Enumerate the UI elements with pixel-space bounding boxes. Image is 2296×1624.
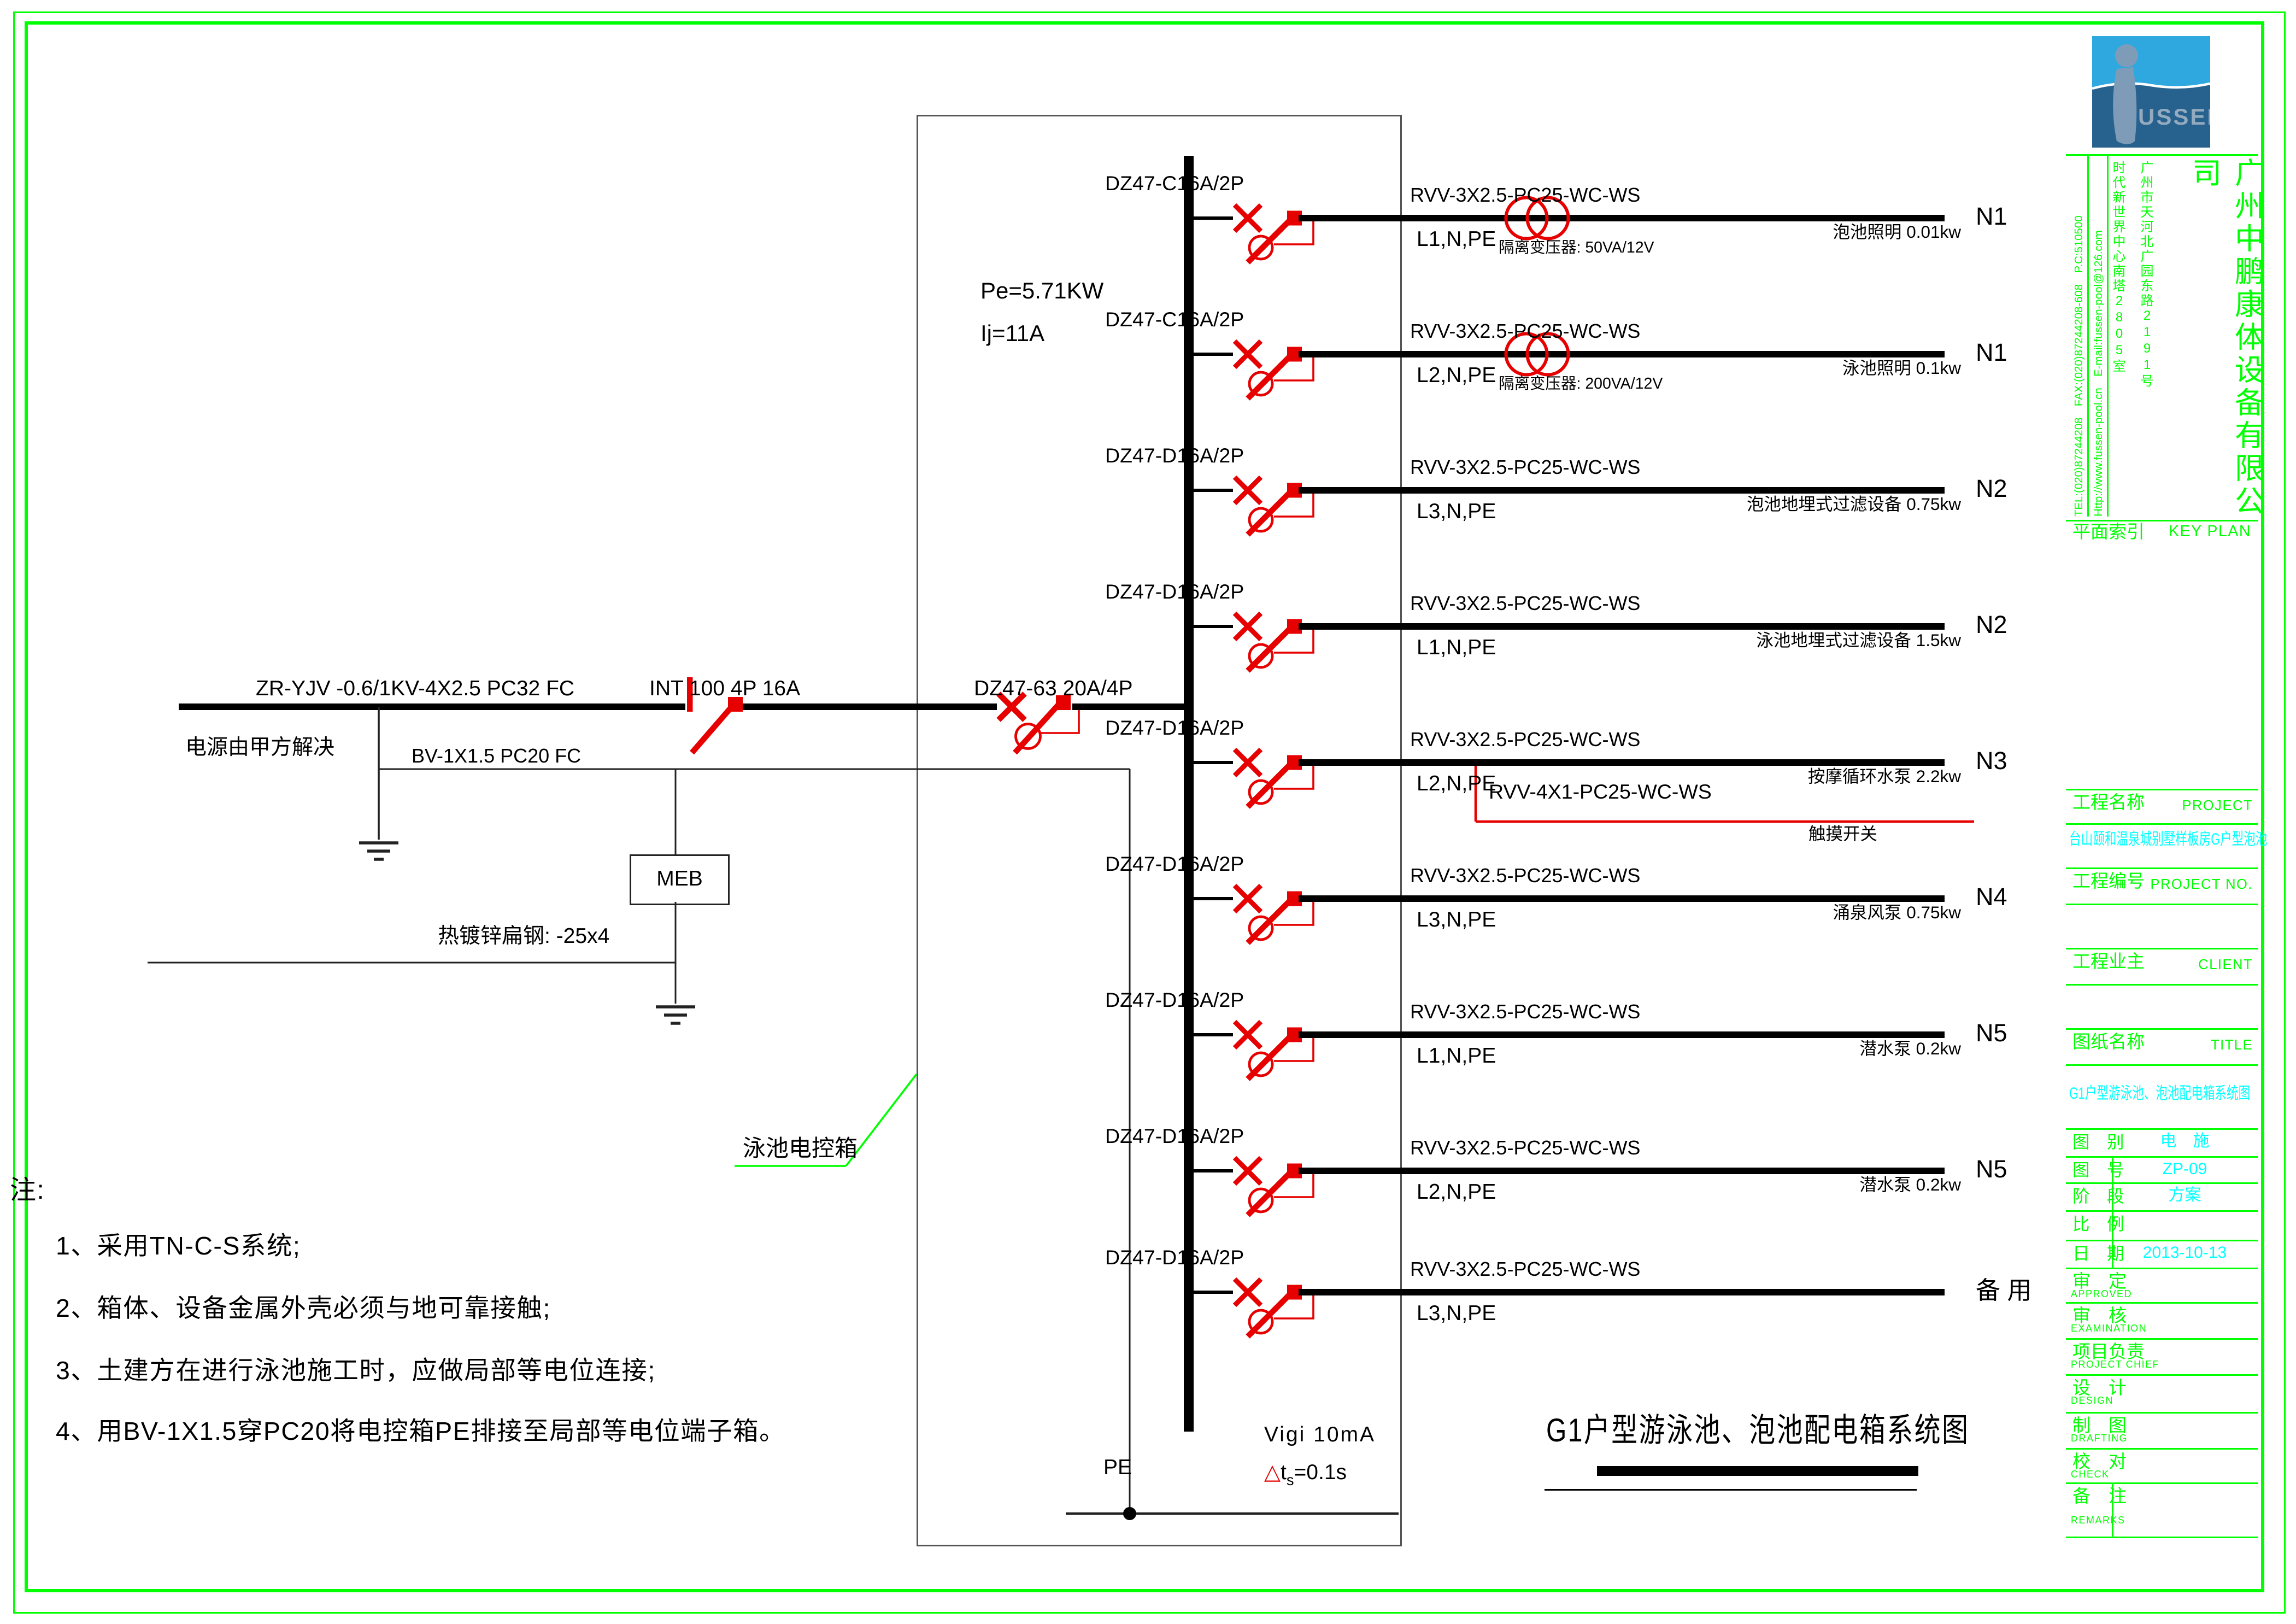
field-divider (2112, 1240, 2113, 1268)
branch-7-breaker-label: DZ47-D16A/2P (1105, 989, 1244, 1012)
company-address-1: 广州市天河北广园东路2191号 (2138, 161, 2156, 515)
calc-current-label: Ij=11A (980, 320, 1044, 346)
drawing-sheet: MEB (0, 0, 2295, 1623)
incoming-cable-label: ZR-YJV -0.6/1KV-4X2.5 PC32 FC (256, 677, 574, 702)
title-underline-thick (1597, 1466, 1918, 1476)
drawing-title: G1户型游泳池、泡池配电箱系统图 (1546, 1414, 1992, 1451)
control-box-label: 泳池电控箱 (743, 1135, 858, 1161)
earth-strip-label: 热镀锌扁钢: -25x4 (438, 925, 609, 949)
logo-text: USSEN (2138, 104, 2210, 130)
branch-8-breaker-label: DZ47-D16A/2P (1105, 1125, 1244, 1148)
project-name-value: 台山颐和温泉城别墅样板房G户型泡池 (2069, 831, 2258, 851)
branch-3-circuit-label: N2 (1976, 476, 2007, 504)
branch-4-circuit-label: N2 (1976, 612, 2007, 640)
field-5-value: 2013-10-13 (2112, 1245, 2258, 1264)
company-address-2: 时代新世界中心南塔2805室 (2110, 161, 2128, 515)
sign-6-en: CHECK (2071, 1471, 2110, 1482)
branch-9-circuit-label: 备 用 (1976, 1277, 2032, 1306)
main-breaker-label: DZ47-63 20A/4P (974, 677, 1133, 702)
branch-5-breaker-label: DZ47-D16A/2P (1105, 717, 1244, 740)
touch-switch-label: 触摸开关 (1808, 825, 1877, 845)
delta-icon: △ (1264, 1459, 1281, 1484)
note-2: 2、箱体、设备金属外壳必须与地可靠接触; (56, 1295, 551, 1324)
branch-4-breaker-label: DZ47-D16A/2P (1105, 581, 1244, 604)
company-info-cell: TEL:(020)87244208 FAX:(020)87244208-608 … (2066, 154, 2258, 520)
branch-6-cable-label: RVV-3X2.5-PC25-WC-WS (1410, 866, 1640, 888)
sign-4-en: DESIGN (2071, 1397, 2113, 1409)
project-label: 工程名称 (2072, 794, 2145, 814)
branch-6-circuit-label: N4 (1976, 884, 2007, 912)
branch-5-cable-label: RVV-3X2.5-PC25-WC-WS (1410, 730, 1640, 752)
keyplan-en: KEY PLAN (2169, 525, 2251, 543)
branch-3-cable-label: RVV-3X2.5-PC25-WC-WS (1410, 458, 1640, 480)
company-name: 广州中鹏康体设备有限公司 (2184, 157, 2269, 518)
sign-5-en: DRAFTING (2071, 1435, 2128, 1446)
remarks-divider (2112, 1482, 2113, 1537)
branch-6-breaker-label: DZ47-D16A/2P (1105, 853, 1244, 876)
remarks-en: REMARKS (2071, 1517, 2125, 1528)
pe-label: PE (1103, 1456, 1132, 1481)
titleblock: USSEN TEL:(020)87244208 FAX:(020)8724420… (2066, 23, 2258, 1586)
branch-4-cable-label: RVV-3X2.5-PC25-WC-WS (1410, 594, 1640, 616)
branch-7-circuit-label: N5 (1976, 1020, 2007, 1048)
branch-1-breaker-label: DZ47-C16A/2P (1105, 172, 1244, 196)
branch-2-transformer-label: 隔离变压器: 200VA/12V (1499, 377, 1663, 395)
branch-6-load-label: 涌泉风泵 0.75kw (1459, 904, 1961, 923)
branch-9-cable-label: RVV-3X2.5-PC25-WC-WS (1410, 1259, 1640, 1282)
drawing-name-en: TITLE (2211, 1038, 2253, 1054)
field-1-value: 电 施 (2112, 1133, 2258, 1152)
drawing-name-value: G1户型游泳池、泡池配电箱系统图 (2069, 1086, 2258, 1105)
project-no-label: 工程编号 (2072, 872, 2145, 893)
field-2-value: ZP-09 (2112, 1161, 2258, 1180)
sign-3-en: PROJECT CHIEF (2071, 1361, 2159, 1373)
branch-2-breaker-label: DZ47-C16A/2P (1105, 308, 1244, 332)
sign-1-en: APPROVED (2071, 1291, 2132, 1302)
client-label: 工程业主 (2072, 953, 2145, 974)
branch-2-cable-label: RVV-3X2.5-PC25-WC-WS (1410, 321, 1640, 344)
branch-7-load-label: 潜水泵 0.2kw (1459, 1040, 1961, 1059)
company-web-email: Http://www.fussen-pool.cn E-mail:fussen-… (2089, 154, 2109, 517)
branch-8-circuit-label: N5 (1976, 1156, 2007, 1185)
notes-heading: 注: (10, 1177, 45, 1207)
field-divider (2112, 1182, 2113, 1210)
note-1: 1、采用TN-C-S系统; (56, 1233, 301, 1262)
branch-1-cable-label: RVV-3X2.5-PC25-WC-WS (1410, 185, 1640, 208)
client-en: CLIENT (2198, 958, 2253, 974)
installed-power-label: Pe=5.71KW (980, 277, 1103, 303)
rcd-time-label: △ts=0.1s (1264, 1461, 1347, 1489)
rcd-label: Vigi 10mA (1264, 1423, 1376, 1448)
busbar (1184, 156, 1194, 1432)
branch-8-cable-label: RVV-3X2.5-PC25-WC-WS (1410, 1138, 1640, 1160)
field-4-label: 比 例 (2072, 1215, 2124, 1235)
branch-1-transformer-label: 隔离变压器: 50VA/12V (1499, 241, 1654, 259)
remarks-label: 备 注 (2072, 1487, 2127, 1508)
project-no-en: PROJECT NO. (2151, 877, 2253, 893)
field-divider (2112, 1210, 2113, 1240)
branch-4-load-label: 泳池地埋式过滤设备 1.5kw (1459, 631, 1961, 651)
branch-5-circuit-label: N3 (1976, 748, 2007, 776)
drawing-name-label: 图纸名称 (2072, 1033, 2145, 1054)
branch-2-circuit-label: N1 (1976, 339, 2007, 368)
branch-8-load-label: 潜水泵 0.2kw (1459, 1176, 1961, 1195)
field-3-value: 方案 (2112, 1187, 2258, 1206)
company-tel-fax: TEL:(020)87244208 FAX:(020)87244208-608 … (2069, 154, 2089, 517)
branch-3-breaker-label: DZ47-D16A/2P (1105, 444, 1244, 468)
field-divider (2112, 1156, 2113, 1182)
note-4: 4、用BV-1X1.5穿PC20将电控箱PE排接至局部等电位端子箱。 (56, 1418, 785, 1447)
power-source-label: 电源由甲方解决 (185, 736, 334, 761)
branch-7-cable-label: RVV-3X2.5-PC25-WC-WS (1410, 1002, 1640, 1024)
branch-9-breaker-label: DZ47-D16A/2P (1105, 1246, 1244, 1270)
pe-junction-dot (1123, 1507, 1136, 1520)
branch-3-load-label: 泡池地埋式过滤设备 0.75kw (1459, 495, 1961, 515)
isolator-label: INT 100 4P 16A (649, 677, 800, 702)
sign-2-en: EXAMINATION (2071, 1325, 2147, 1336)
branch-9-phase-label: L3,N,PE (1417, 1302, 1496, 1327)
title-underline-thin (1545, 1489, 1917, 1491)
branch-1-circuit-label: N1 (1976, 203, 2007, 232)
company-contacts: TEL:(020)87244208 FAX:(020)87244208-608 … (2069, 154, 2109, 517)
fussen-logo: USSEN (2092, 36, 2210, 148)
note-3: 3、土建方在进行泳池施工时，应做局部等电位连接; (56, 1358, 656, 1387)
project-en: PROJECT (2182, 799, 2253, 814)
pe-cable-label: BV-1X1.5 PC20 FC (412, 746, 581, 769)
keyplan-label: 平面索引 (2072, 523, 2145, 544)
branch-5-load-label: 按摩循环水泵 2.2kw (1459, 767, 1961, 787)
